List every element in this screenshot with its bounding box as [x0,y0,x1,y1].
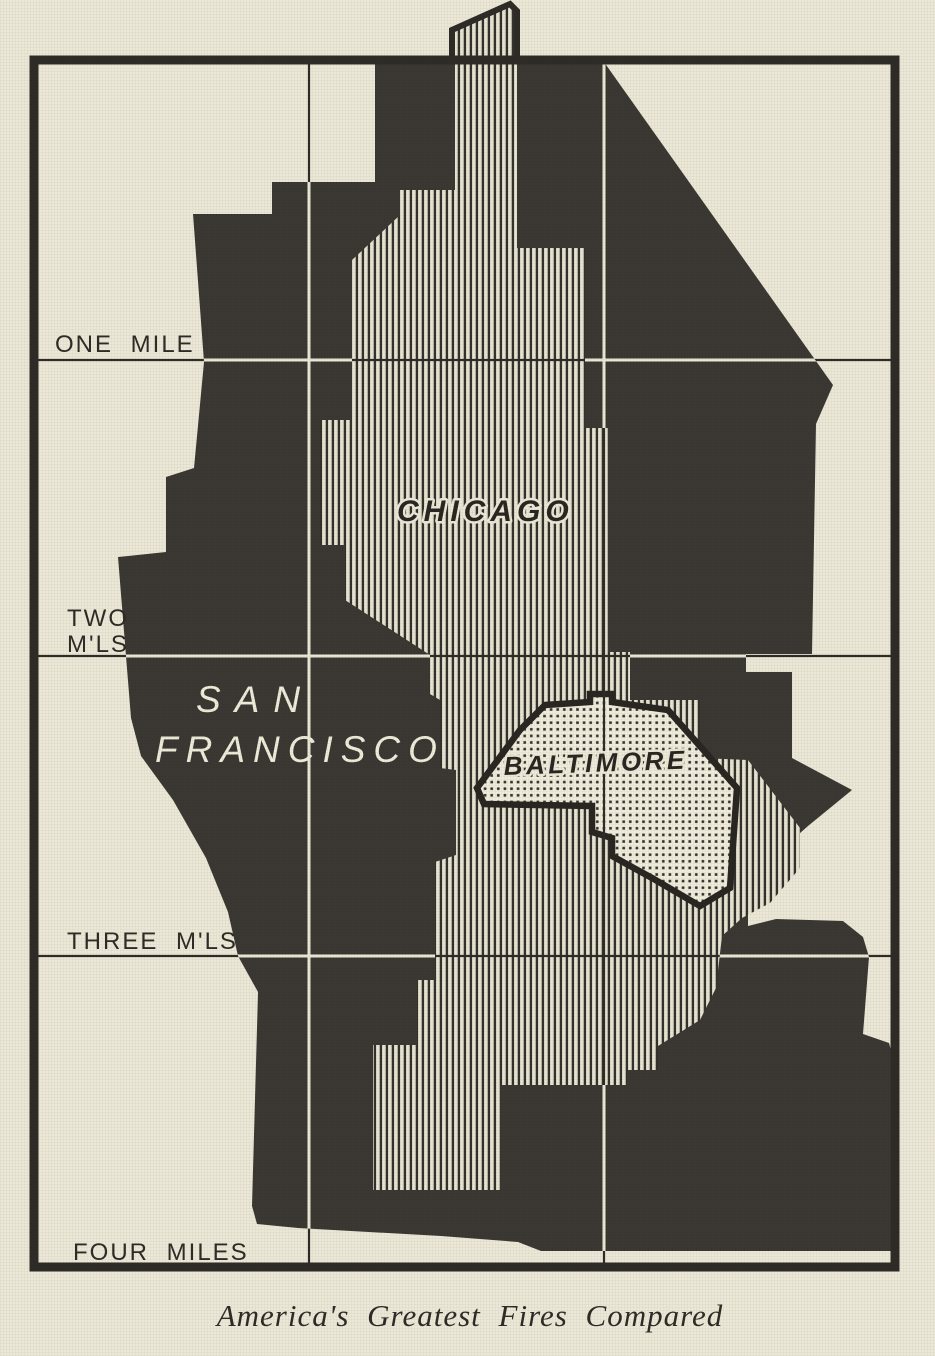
scanned-book-page: ONE MILE TWO M'LS THREE M'LS FOUR MILES … [0,0,935,1356]
scale-label-three-mls: THREE M'LS [67,928,238,955]
scale-label-four-miles: FOUR MILES [73,1239,249,1266]
region-label-baltimore: BALTIMORE [503,745,688,781]
map-caption: America's Greatest Fires Compared [215,1298,724,1333]
region-label-chicago: CHICAGO [397,495,574,528]
scale-label-two-mls-line2: M'LS [67,631,129,658]
region-label-san-francisco-line1: SAN [196,679,314,720]
scale-label-two-mls-line1: TWO [67,605,129,632]
fires-comparison-map: ONE MILE TWO M'LS THREE M'LS FOUR MILES … [0,0,935,1356]
scale-label-one-mile: ONE MILE [55,331,195,358]
region-label-san-francisco-line2: FRANCISCO [155,729,445,770]
